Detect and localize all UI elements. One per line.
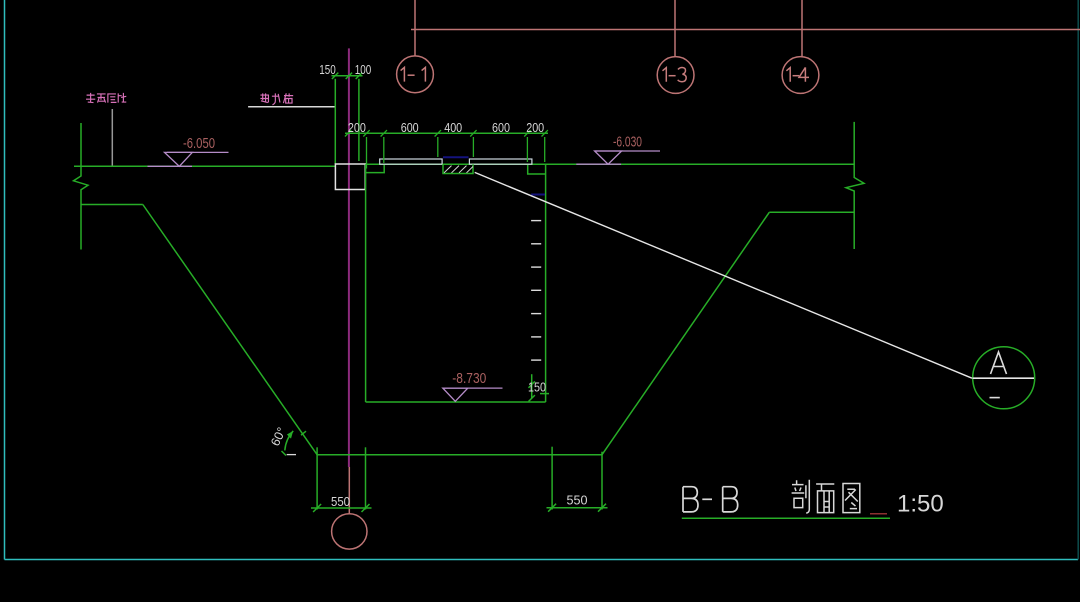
svg-text:-6.050: -6.050 <box>183 136 215 152</box>
svg-text:100: 100 <box>355 63 372 77</box>
svg-text:-6.030: -6.030 <box>613 135 642 151</box>
svg-text:1:50: 1:50 <box>897 491 944 518</box>
svg-text:150: 150 <box>528 381 546 395</box>
svg-text:200: 200 <box>348 121 366 135</box>
svg-text:400: 400 <box>444 121 462 135</box>
svg-text:600: 600 <box>492 121 510 135</box>
svg-text:200: 200 <box>526 121 544 135</box>
svg-text:600: 600 <box>401 121 419 135</box>
svg-text:150: 150 <box>319 63 336 77</box>
svg-text:550: 550 <box>567 494 588 508</box>
svg-text:-8.730: -8.730 <box>452 371 486 387</box>
svg-text:550: 550 <box>331 495 350 509</box>
